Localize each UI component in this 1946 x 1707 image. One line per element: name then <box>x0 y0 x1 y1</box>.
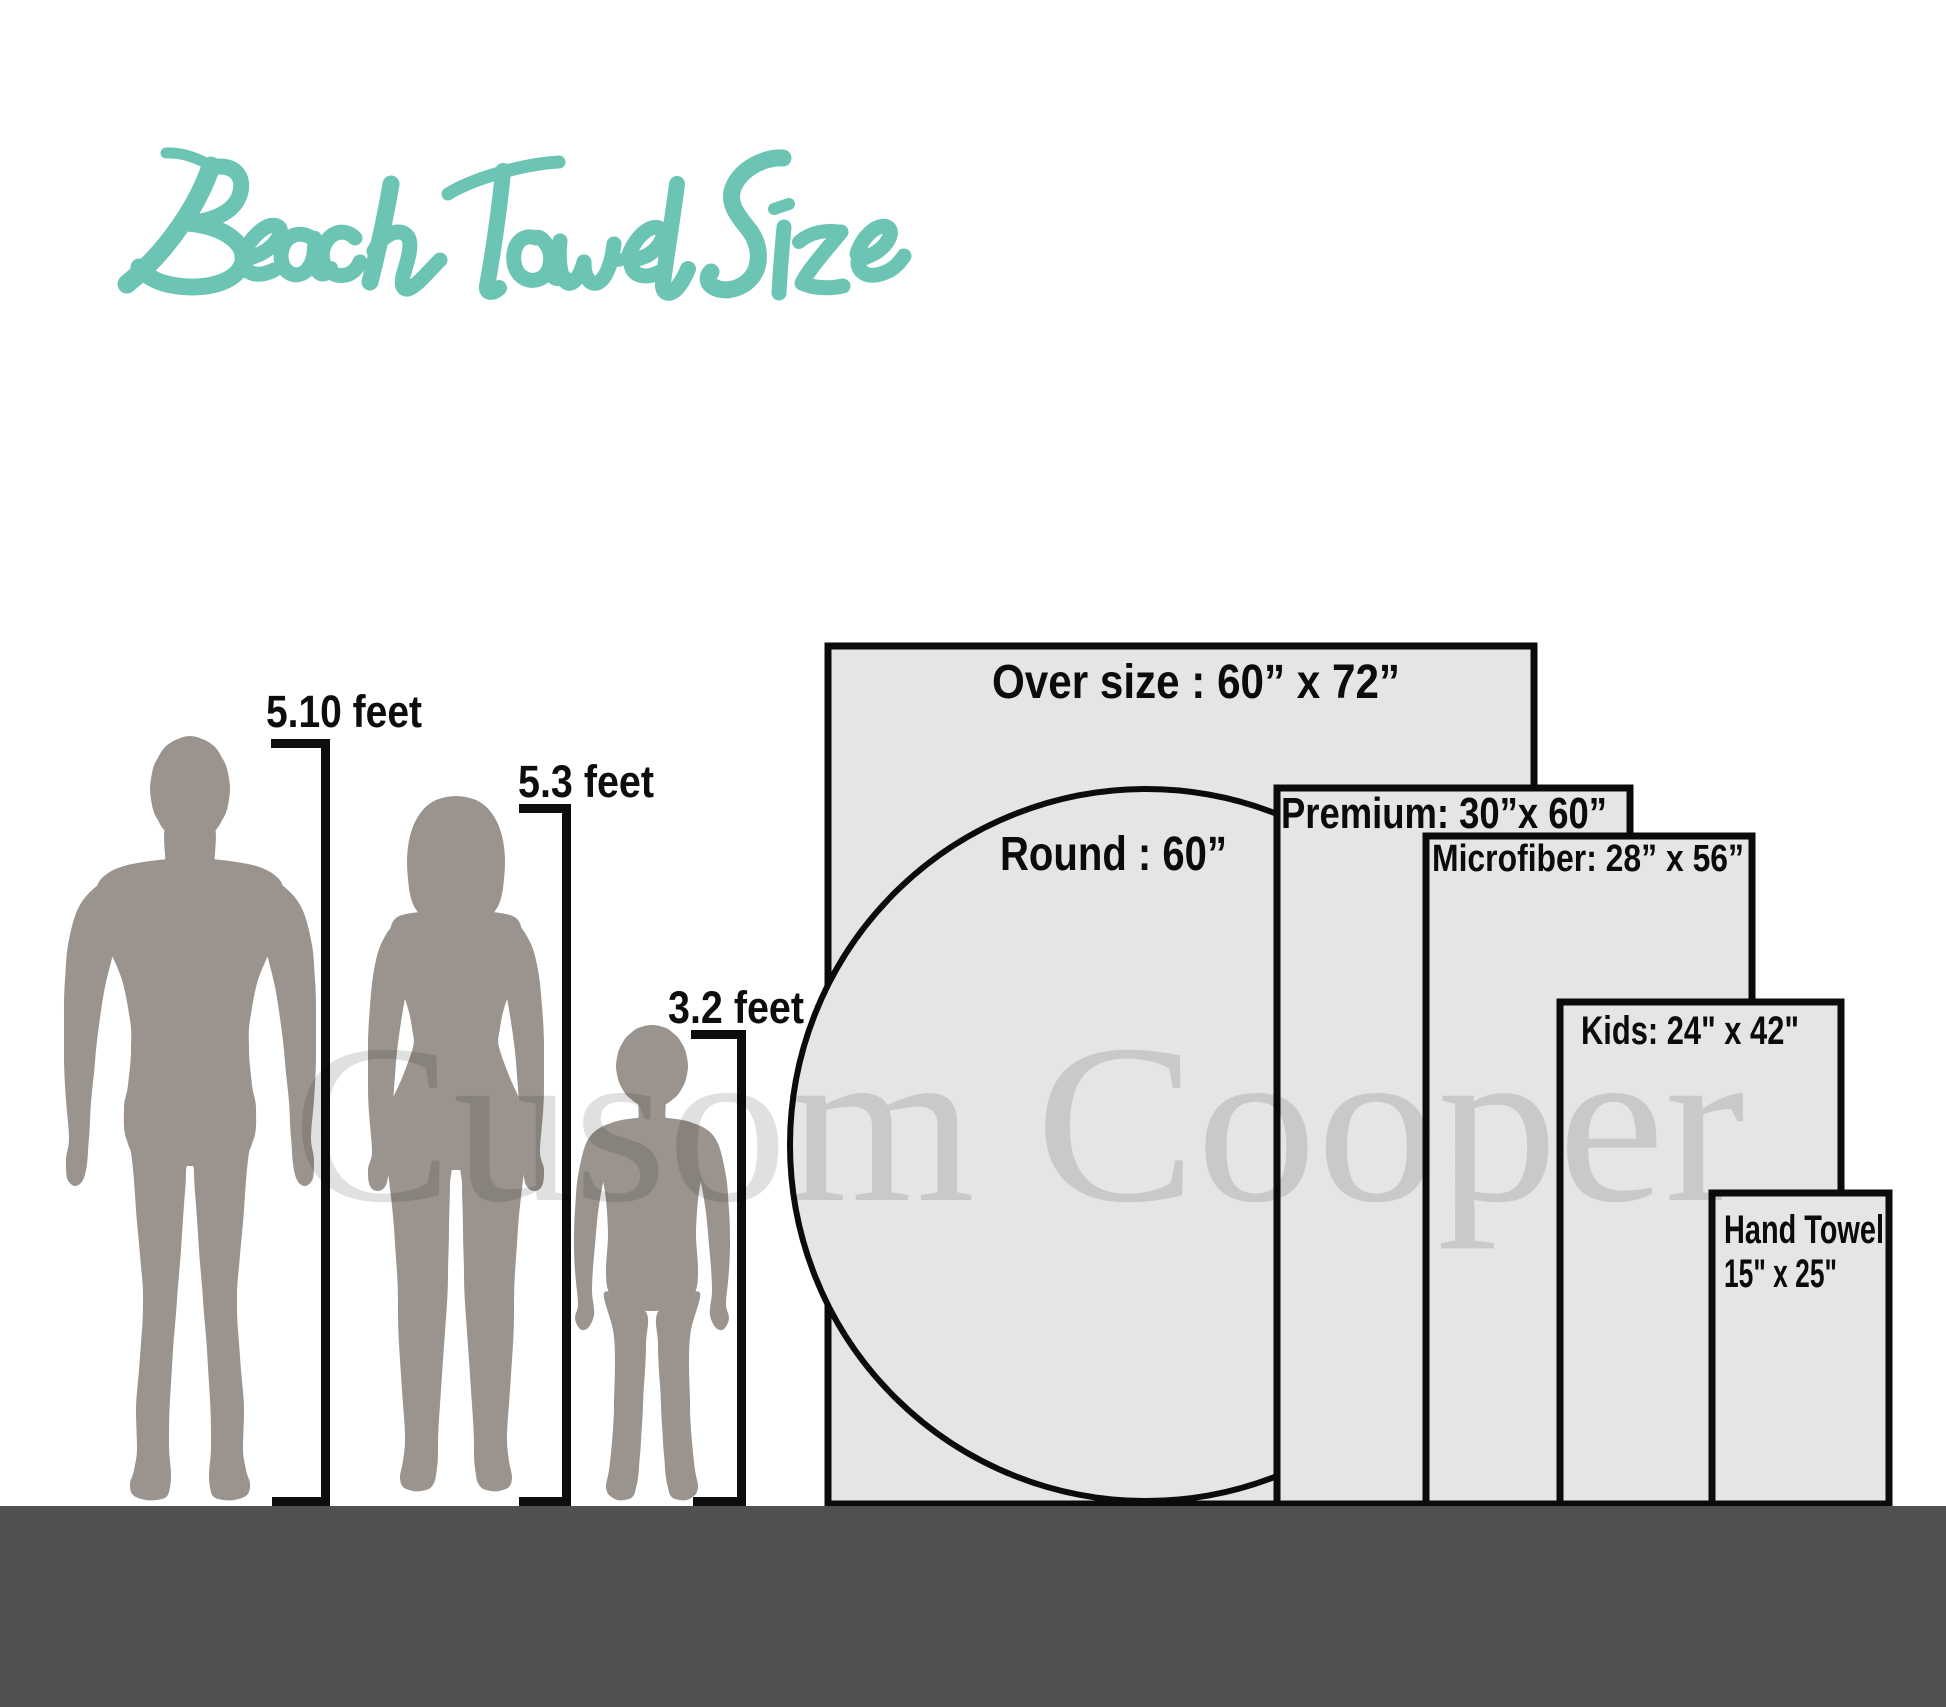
svg-text:5.10 feet: 5.10 feet <box>266 686 422 737</box>
svg-text:Microfiber: 28” x 56”: Microfiber: 28” x 56” <box>1432 838 1744 880</box>
svg-text:Premium: 30”x 60”: Premium: 30”x 60” <box>1281 789 1607 838</box>
svg-text:Hand Towel: Hand Towel <box>1724 1208 1884 1252</box>
svg-text:Cusom Cooper: Cusom Cooper <box>292 999 1745 1250</box>
svg-text:Round : 60”: Round : 60” <box>1000 828 1227 881</box>
svg-text:15" x 25": 15" x 25" <box>1724 1252 1837 1296</box>
svg-text:Over size : 60” x 72”: Over size : 60” x 72” <box>992 656 1400 709</box>
svg-text:5.3 feet: 5.3 feet <box>518 756 654 807</box>
